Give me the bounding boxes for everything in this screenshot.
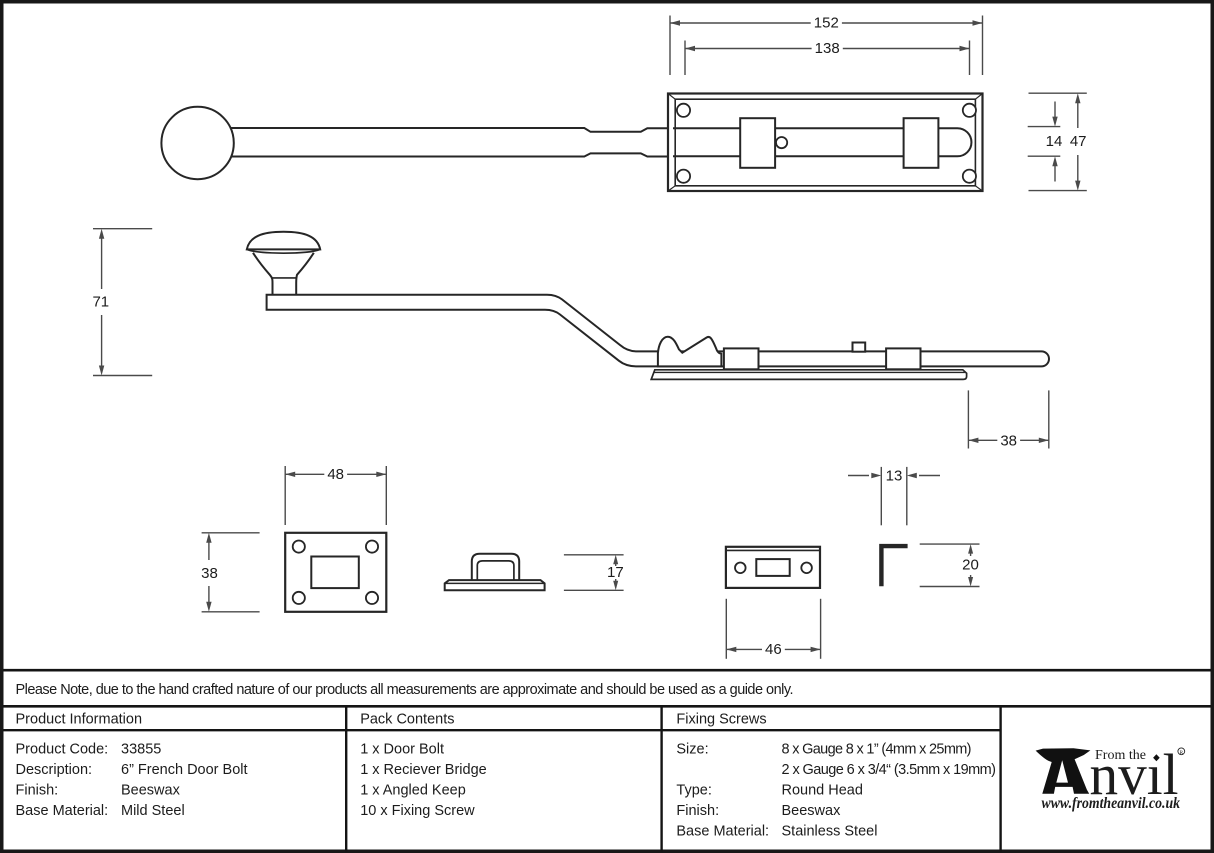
svg-text:Finish:: Finish: xyxy=(16,783,59,799)
svg-text:Mild Steel: Mild Steel xyxy=(121,803,185,819)
svg-text:138: 138 xyxy=(815,40,840,57)
svg-text:Please Note, due to the hand c: Please Note, due to the hand crafted nat… xyxy=(16,682,794,698)
svg-text:Finish:: Finish: xyxy=(676,803,719,819)
svg-text:20: 20 xyxy=(962,557,979,574)
svg-text:38: 38 xyxy=(201,565,218,582)
svg-text:14: 14 xyxy=(1046,133,1063,150)
svg-text:6” French Door Bolt: 6” French Door Bolt xyxy=(121,762,248,778)
svg-text:Description:: Description: xyxy=(16,762,93,778)
svg-text:Type:: Type: xyxy=(676,783,711,799)
svg-text:10 x Fixing Screw: 10 x Fixing Screw xyxy=(360,803,475,819)
svg-text:Product Code:: Product Code: xyxy=(16,742,109,758)
svg-text:www.fromtheanvil.co.uk: www.fromtheanvil.co.uk xyxy=(1042,795,1181,812)
svg-text:48: 48 xyxy=(327,466,344,483)
svg-text:46: 46 xyxy=(765,641,782,658)
svg-text:8 x Gauge 8 x 1” (4mm x 25mm): 8 x Gauge 8 x 1” (4mm x 25mm) xyxy=(782,742,972,758)
svg-text:Pack Contents: Pack Contents xyxy=(360,712,454,728)
svg-text:1 x Angled Keep: 1 x Angled Keep xyxy=(360,783,466,799)
svg-text:17: 17 xyxy=(607,564,624,581)
svg-text:From the: From the xyxy=(1095,747,1146,762)
svg-text:R: R xyxy=(1179,750,1183,756)
svg-text:Fixing Screws: Fixing Screws xyxy=(676,712,766,728)
svg-text:47: 47 xyxy=(1070,133,1087,150)
svg-text:Beeswax: Beeswax xyxy=(121,783,181,799)
svg-text:Beeswax: Beeswax xyxy=(782,803,842,819)
svg-text:33855: 33855 xyxy=(121,742,161,758)
svg-text:Size:: Size: xyxy=(676,742,708,758)
svg-text:71: 71 xyxy=(92,294,109,311)
svg-text:1 x Door Bolt: 1 x Door Bolt xyxy=(360,742,444,758)
svg-text:Round Head: Round Head xyxy=(782,783,863,799)
svg-text:Base Material:: Base Material: xyxy=(676,823,769,839)
svg-text:Stainless Steel: Stainless Steel xyxy=(782,823,878,839)
svg-text:Base Material:: Base Material: xyxy=(16,803,109,819)
svg-text:152: 152 xyxy=(814,15,839,32)
svg-text:38: 38 xyxy=(1000,432,1017,449)
svg-text:1 x Reciever Bridge: 1 x Reciever Bridge xyxy=(360,762,487,778)
svg-text:13: 13 xyxy=(886,468,903,485)
svg-text:Product Information: Product Information xyxy=(16,712,143,728)
svg-text:2 x Gauge 6 x 3/4“ (3.5mm x 19: 2 x Gauge 6 x 3/4“ (3.5mm x 19mm) xyxy=(782,762,997,778)
